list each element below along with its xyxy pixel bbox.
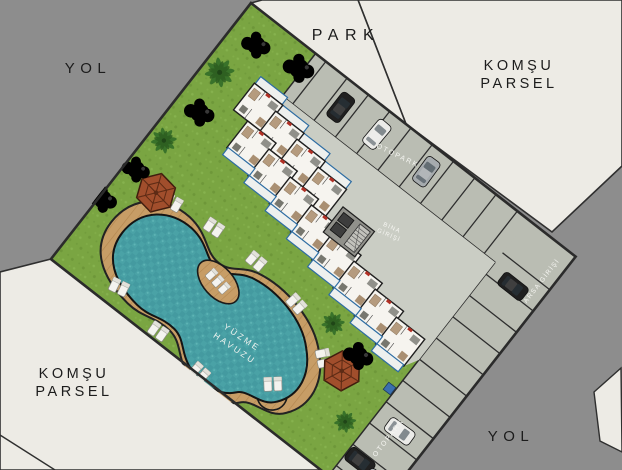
road-label-top-left: YOL	[65, 60, 112, 77]
neighbor-bottom-line1: KOMŞU	[39, 366, 110, 382]
neighbor-top-line1: KOMŞU	[484, 58, 555, 74]
neighbor-bottom-line2: PARSEL	[35, 384, 112, 400]
site-plan-drawing: BİNA GİRİŞİ YÜZME HAVUZU	[0, 0, 622, 470]
park-label: PARK	[312, 27, 380, 44]
site-plan-page: BİNA GİRİŞİ YÜZME HAVUZU	[0, 0, 622, 470]
neighbor-top-line2: PARSEL	[480, 76, 557, 92]
road-label-bottom-right: YOL	[488, 428, 535, 445]
